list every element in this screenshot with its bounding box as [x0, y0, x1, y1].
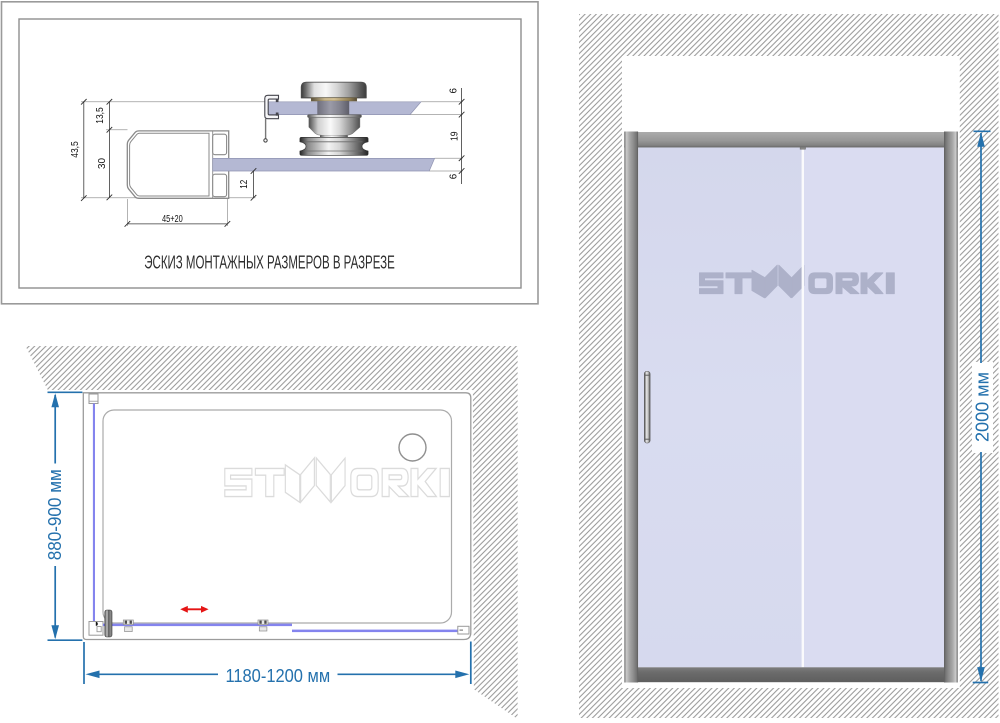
svg-text:43,5: 43,5: [70, 141, 81, 158]
svg-text:6: 6: [448, 173, 459, 179]
svg-text:12: 12: [239, 180, 250, 189]
svg-text:13,5: 13,5: [95, 107, 106, 124]
svg-text:19: 19: [450, 132, 461, 142]
svg-text:45+20: 45+20: [162, 214, 183, 225]
svg-text:ЭСКИЗ МОНТАЖНЫХ РАЗМЕРОВ В РАЗ: ЭСКИЗ МОНТАЖНЫХ РАЗМЕРОВ В РАЗРЕЗЕ: [144, 252, 395, 273]
svg-text:30: 30: [97, 157, 108, 169]
svg-text:880-900 мм: 880-900 мм: [45, 469, 65, 560]
svg-text:2000 мм: 2000 мм: [973, 372, 993, 442]
svg-text:1180-1200 мм: 1180-1200 мм: [225, 666, 330, 686]
svg-text:6: 6: [448, 88, 459, 94]
